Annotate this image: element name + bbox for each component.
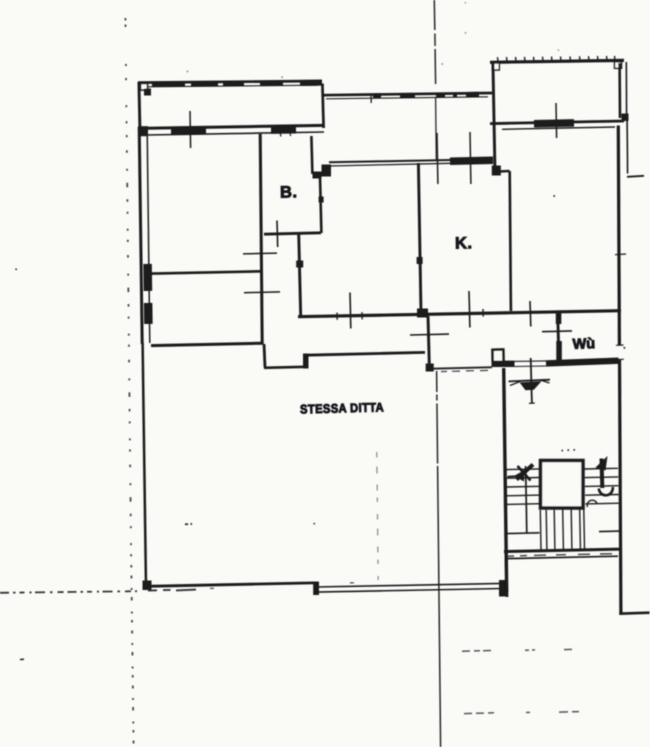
svg-text:K.: K. bbox=[455, 234, 473, 252]
svg-text:Wù: Wù bbox=[572, 336, 595, 353]
svg-text:B.: B. bbox=[280, 183, 298, 201]
svg-text:STESSA DITTA: STESSA DITTA bbox=[300, 400, 384, 416]
